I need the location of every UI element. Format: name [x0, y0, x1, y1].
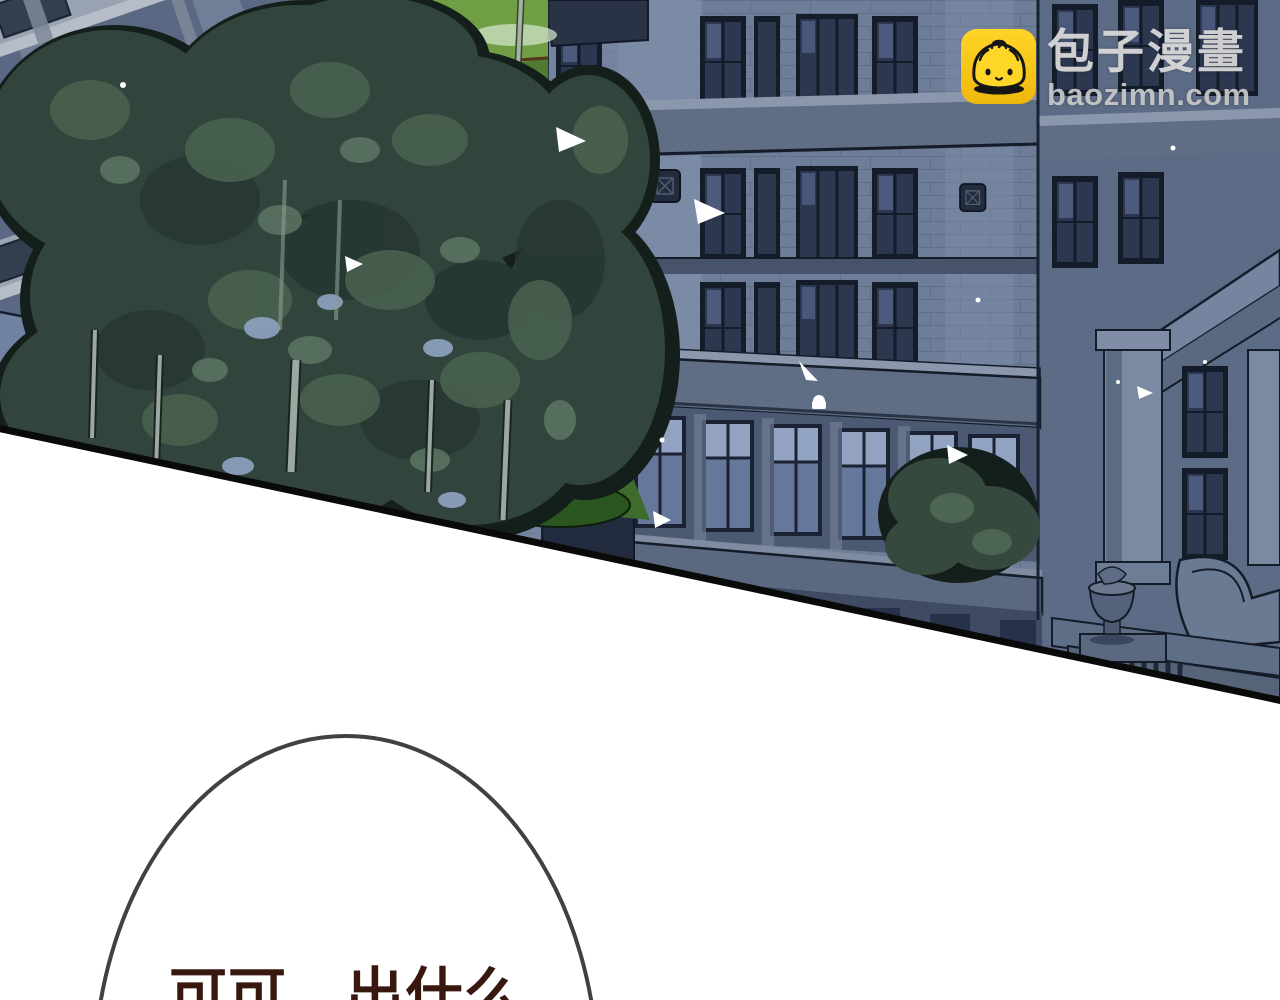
facade-plaque	[960, 184, 986, 211]
night-apartment-scene	[0, 0, 1280, 1000]
speech-bubble-text: 可可，出什么	[96, 948, 596, 1000]
comic-page: 包子漫畫 baozimn.com 可可，出什么	[0, 0, 1280, 1000]
